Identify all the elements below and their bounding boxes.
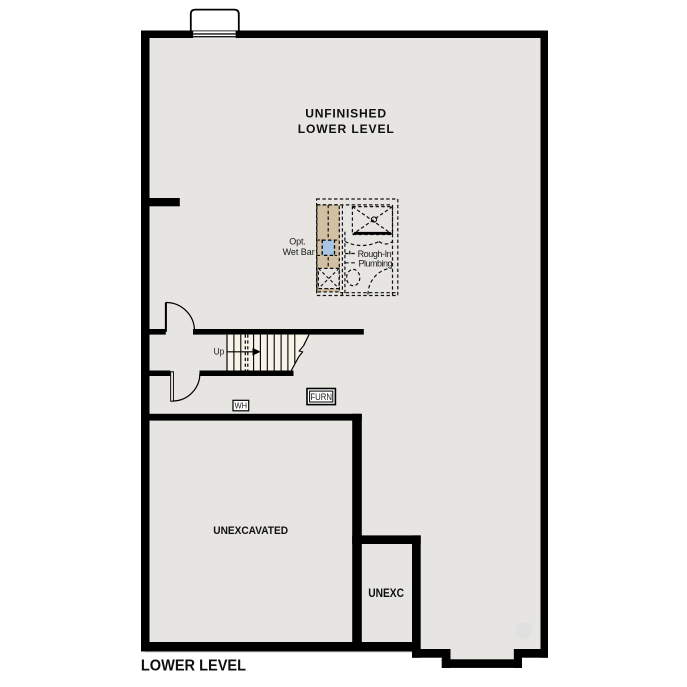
svg-text:Up: Up <box>214 347 225 357</box>
svg-text:UNEXCAVATED: UNEXCAVATED <box>213 525 288 537</box>
svg-text:UNFINISHED: UNFINISHED <box>305 107 386 121</box>
svg-text:UNEXC: UNEXC <box>368 586 404 600</box>
svg-text:LOWER LEVEL: LOWER LEVEL <box>141 658 246 675</box>
svg-text:Opt.: Opt. <box>289 237 306 247</box>
svg-text:Rough-In: Rough-In <box>358 249 392 259</box>
svg-text:LOWER LEVEL: LOWER LEVEL <box>298 122 395 136</box>
svg-text:FURN: FURN <box>310 392 332 402</box>
svg-text:Plumbing: Plumbing <box>359 259 393 269</box>
svg-text:Wet Bar: Wet Bar <box>283 247 315 257</box>
svg-text:WH: WH <box>235 402 247 411</box>
